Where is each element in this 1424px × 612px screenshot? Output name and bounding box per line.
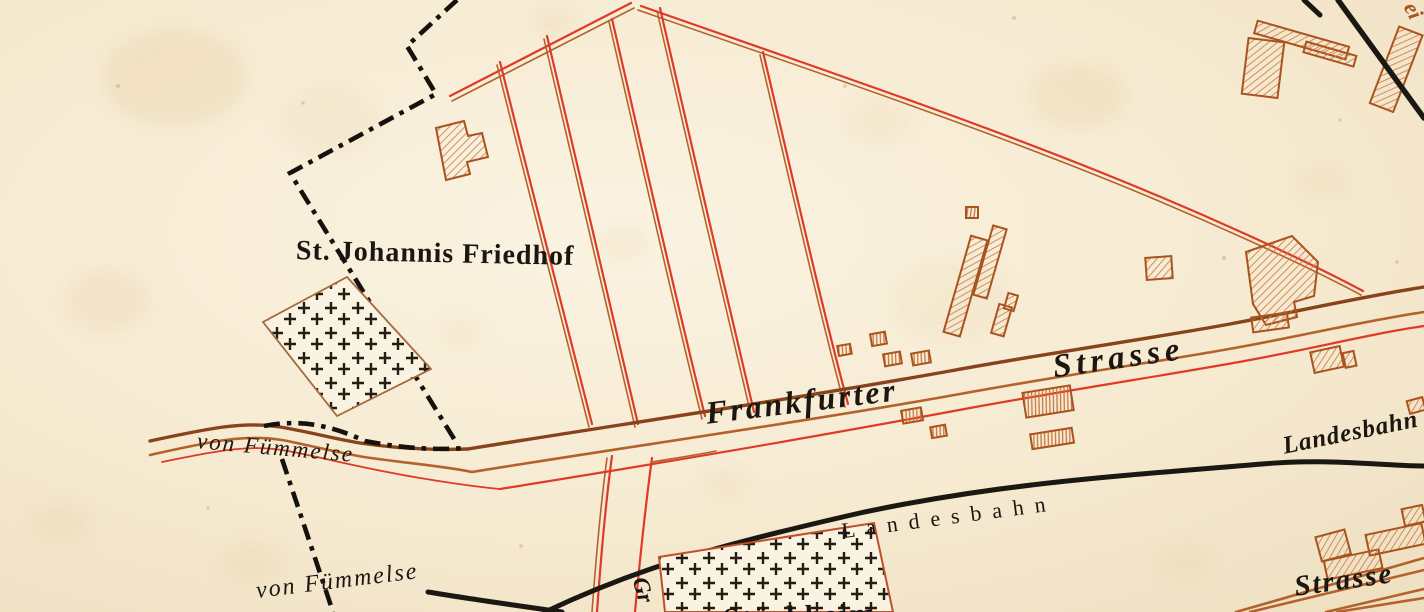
building bbox=[837, 344, 852, 356]
label-st-johannis-friedhof: St. Johannis Friedhof bbox=[296, 235, 575, 272]
building bbox=[901, 407, 923, 423]
building bbox=[1242, 38, 1285, 98]
building bbox=[930, 425, 947, 438]
building bbox=[1402, 505, 1424, 526]
building bbox=[883, 352, 902, 367]
map-canvas: St. Johannis Friedhof Frankfurter Strass… bbox=[0, 0, 1424, 612]
building bbox=[1343, 351, 1357, 368]
building bbox=[1145, 256, 1172, 280]
building bbox=[966, 207, 978, 218]
building bbox=[870, 332, 887, 346]
building bbox=[911, 351, 931, 366]
historical-map: St. Johannis Friedhof Frankfurter Strass… bbox=[0, 0, 1424, 612]
